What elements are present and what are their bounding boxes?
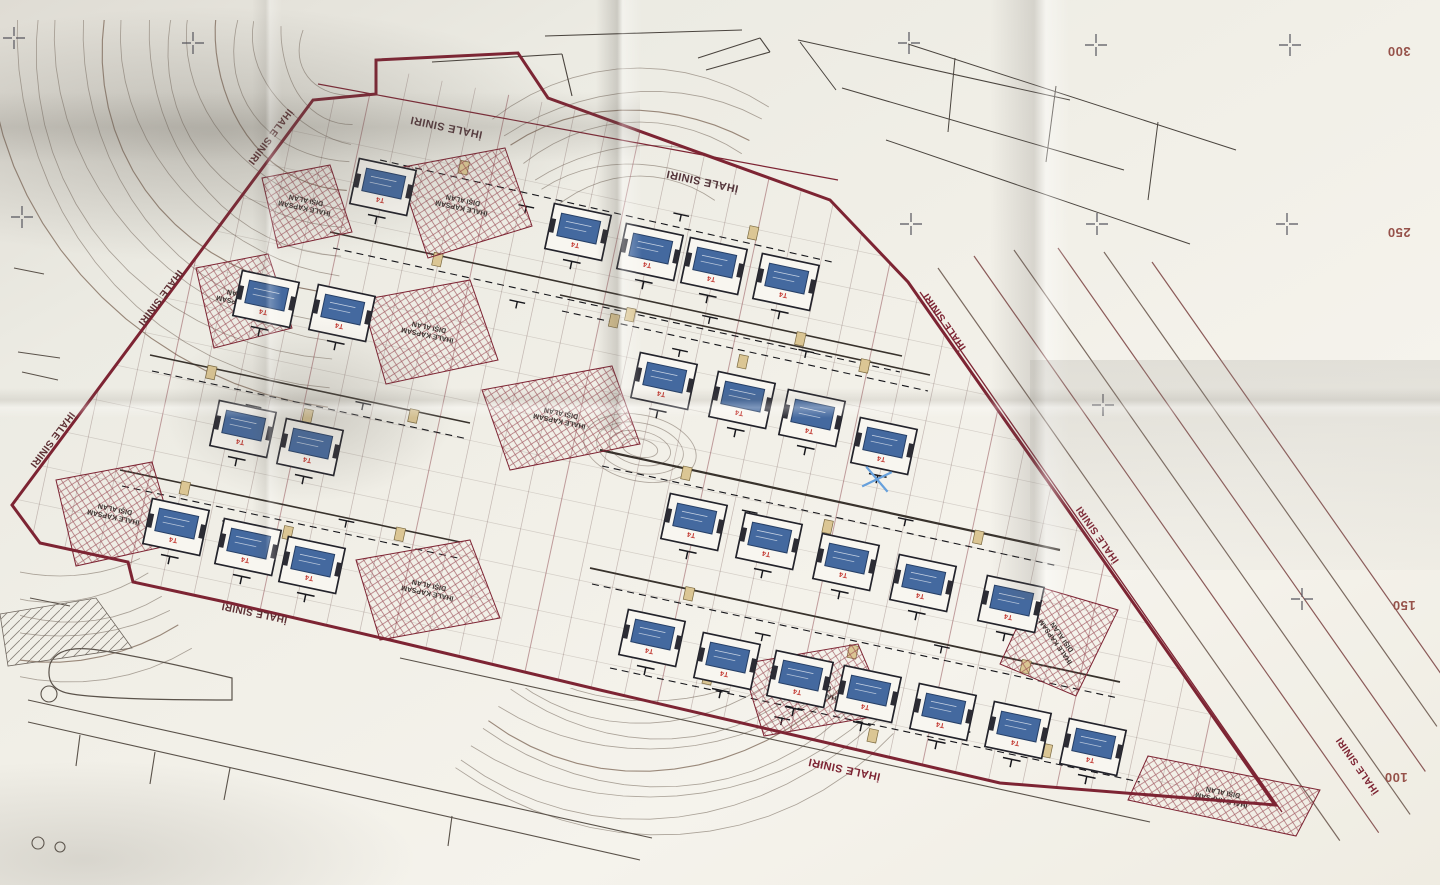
grid-cross-icon <box>898 32 920 54</box>
grid-cross-icon <box>182 32 204 54</box>
boundary-label: İHALE SINIRI <box>807 755 881 783</box>
entrance-mark <box>926 739 945 751</box>
grid-cross-icon <box>1086 213 1108 235</box>
building-block: T4 <box>706 371 775 443</box>
entrance-mark <box>677 549 696 561</box>
road-tee-mark <box>797 349 814 359</box>
boundary-label: İHALE SINIRI <box>409 113 483 141</box>
building-block: T4 <box>628 352 697 424</box>
building-block: T4 <box>810 533 879 605</box>
boundary-outline <box>12 53 1275 805</box>
boundary-label: İHALE SINIRI <box>1333 735 1382 797</box>
grid-cross-icon <box>1092 394 1114 416</box>
road-tee-mark <box>508 300 525 310</box>
road-tee-mark <box>896 518 913 528</box>
building-block: T4 <box>658 493 727 565</box>
entrance-mark <box>159 554 178 566</box>
utility-box <box>608 313 620 328</box>
building-block: T4 <box>616 609 685 681</box>
building-block: T4 <box>1057 718 1126 790</box>
site-plan-drawing: İHALE KAPSAMDIŞI ALANİHALE KAPSAMDIŞI AL… <box>0 0 1440 885</box>
grid-cross-icon <box>3 27 25 49</box>
excluded-area-patch: İHALE KAPSAMDIŞI ALAN <box>362 280 498 384</box>
utility-box <box>867 729 879 744</box>
building-block: T4 <box>678 237 747 309</box>
building-block: T4 <box>274 418 343 490</box>
boundary-label: İHALE SINIRI <box>1073 504 1122 566</box>
utility-box <box>822 519 834 534</box>
grid-coordinate-label: 150 <box>1392 598 1415 613</box>
boundary-label: İHALE SINIRI <box>665 167 739 195</box>
building-block: T4 <box>212 518 281 590</box>
building-blocks: T4T4T4T4T4T4T4T4T4T4T4T4T4T4T4T4T4T4T4T4… <box>140 158 1126 790</box>
entrance-mark <box>710 688 729 700</box>
road-tee-mark <box>337 519 354 529</box>
entrance-mark <box>226 456 245 468</box>
building-block: T4 <box>691 632 760 704</box>
grid-cross-icon <box>11 206 33 228</box>
road-tee-mark <box>354 402 371 412</box>
entrance-mark <box>725 427 744 439</box>
building-block: T4 <box>347 158 416 230</box>
boundary-label: İHALE SINIRI <box>27 409 78 470</box>
entrance-mark <box>769 309 788 321</box>
grid-cross-icon <box>900 213 922 235</box>
building-block: T4 <box>542 203 611 275</box>
building-block: T4 <box>276 536 345 608</box>
boundary-label: İHALE SINIRI <box>220 600 288 627</box>
grid-cross-icon <box>1276 213 1298 235</box>
excluded-area-patch: İHALE KAPSAMDIŞI ALAN <box>262 165 352 248</box>
utility-box <box>859 359 871 374</box>
building-block: T4 <box>776 389 845 461</box>
grid-cross-icon <box>1279 34 1301 56</box>
entrance-mark <box>906 610 925 622</box>
entrance-mark <box>1001 757 1020 769</box>
entrance-mark <box>366 214 385 226</box>
utility-box <box>302 409 314 424</box>
building-block: T4 <box>832 665 901 737</box>
building-block: T4 <box>887 554 956 626</box>
entrance-mark <box>795 445 814 457</box>
building-block: T4 <box>733 512 802 584</box>
boundary-label: İHALE SINIRI <box>135 267 186 328</box>
hatched-strip <box>0 598 132 666</box>
building-block: T4 <box>140 498 209 570</box>
excluded-area-patch: İHALE KAPSAMDIŞI ALAN <box>356 540 500 640</box>
grid-cross-icon <box>1085 34 1107 56</box>
boundary-label: İHALE SINIRI <box>920 291 969 353</box>
grid-coordinate-label: 300 <box>1387 44 1410 59</box>
grid-coordinate-label: 250 <box>1387 225 1410 240</box>
building-block: T4 <box>750 253 819 325</box>
building-block: T4 <box>207 400 276 472</box>
grid-coordinate-label: 100 <box>1384 770 1407 785</box>
entrance-mark <box>635 665 654 677</box>
site-plan-photo: İHALE KAPSAMDIŞI ALANİHALE KAPSAMDIŞI AL… <box>0 0 1440 885</box>
building-block: T4 <box>846 417 917 495</box>
road-tee-mark <box>754 633 771 643</box>
road-tee-mark <box>671 348 688 358</box>
entrance-mark <box>325 340 344 352</box>
utility-box <box>737 354 749 369</box>
